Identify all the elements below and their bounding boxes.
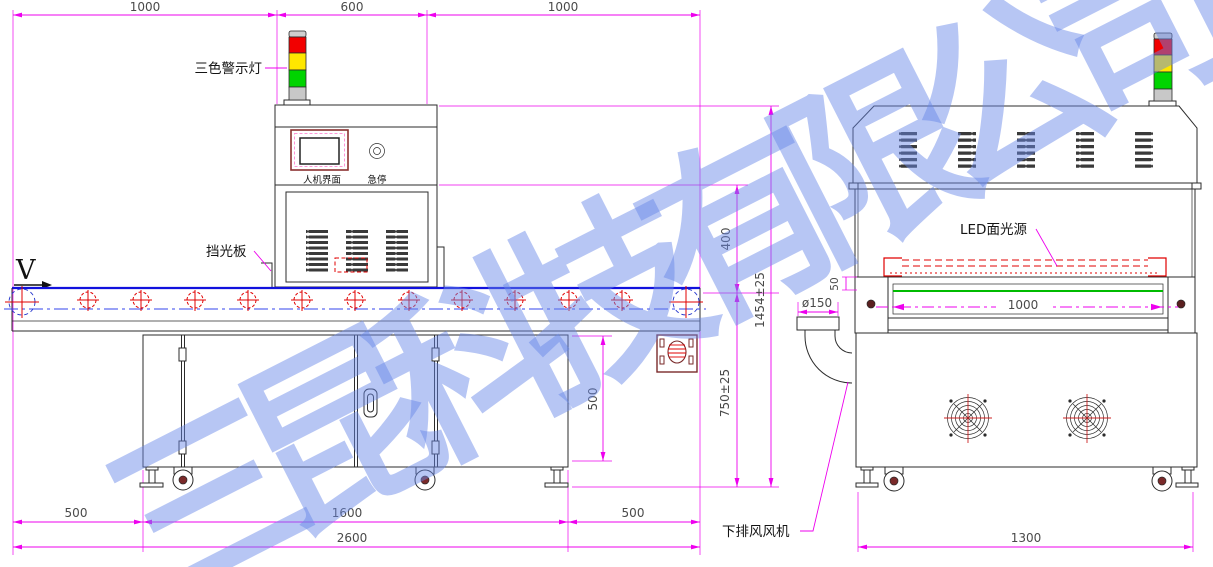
tower-green-segment <box>289 70 306 87</box>
dim-cabinet-500: 500 <box>586 388 600 411</box>
gap-dimension: 50 <box>829 277 857 291</box>
tower-light-callout: 三色警示灯 <box>195 60 288 77</box>
exhaust-duct: ø150 <box>797 296 852 383</box>
dim-400: 400 <box>719 228 733 251</box>
conveyor <box>4 286 706 331</box>
dim-bottom-2600: 2600 <box>337 531 368 545</box>
light-shield-left <box>261 263 272 289</box>
exhaust-label: 下排风风机 <box>722 524 790 540</box>
caster-wheel <box>173 467 193 490</box>
roller <box>611 290 633 311</box>
feet-and-casters-side <box>140 467 568 490</box>
hood-louver <box>958 132 976 171</box>
side-view: 1000 600 1000 500 1600 500 2600 400 750±… <box>4 0 779 555</box>
hmi-screen <box>291 130 348 170</box>
hood-louver <box>1135 132 1153 171</box>
duct-dimension: ø150 <box>798 296 838 316</box>
dim-top-600: 600 <box>341 0 364 14</box>
louver-group <box>386 230 408 273</box>
leveling-foot <box>545 467 568 487</box>
rollers <box>77 290 633 311</box>
dim-bottom-left-500: 500 <box>65 506 88 520</box>
cad-drawing-page: 1000 600 1000 500 1600 500 2600 400 750±… <box>0 0 1213 567</box>
hood-louver <box>899 132 917 171</box>
tower-base <box>289 87 306 100</box>
hinge <box>179 348 186 361</box>
cooling-fan <box>944 394 992 443</box>
roller <box>398 290 420 311</box>
dim-top-right-1000: 1000 <box>548 0 579 14</box>
dim-bottom-1600: 1600 <box>332 506 363 520</box>
tower-yellow-segment <box>289 53 306 70</box>
hood-louver <box>1076 132 1094 171</box>
tower-light-side <box>284 31 310 105</box>
caster-wheel <box>415 467 435 490</box>
estop-label: 急停 <box>367 174 387 186</box>
dim-1300: 1300 <box>1011 531 1042 545</box>
dim-duct-dia: ø150 <box>802 296 832 310</box>
bolt <box>867 300 875 308</box>
light-shield-callout: 挡光板 <box>206 244 271 271</box>
leveling-foot <box>856 467 878 487</box>
bottom-dimensions: 500 1600 500 2600 <box>13 506 700 547</box>
feet-and-casters-front <box>856 467 1198 491</box>
end-roller-left <box>5 286 39 318</box>
front-lower-cabinet <box>856 333 1197 467</box>
light-shield-right <box>437 247 444 289</box>
roller <box>184 290 206 311</box>
view-marker: V <box>14 255 52 289</box>
dim-bottom-right-500: 500 <box>622 506 645 520</box>
front-view: LED面光源 1000 <box>722 33 1201 552</box>
roller <box>77 290 99 311</box>
control-box: 人机界面 急停 <box>261 105 444 289</box>
hinge <box>432 441 439 454</box>
hinge <box>432 348 439 361</box>
leveling-foot <box>1176 467 1198 487</box>
caster-wheel <box>884 467 904 491</box>
tower-red-segment <box>289 37 306 53</box>
exhaust-callout: 下排风风机 <box>722 382 848 540</box>
louver-group <box>306 230 328 273</box>
leveling-foot <box>140 467 163 487</box>
roller <box>451 290 473 311</box>
roller <box>237 290 259 311</box>
dim-1454: 1454±25 <box>753 272 767 328</box>
caster-wheel <box>1152 467 1172 491</box>
light-shield-label: 挡光板 <box>206 244 247 260</box>
roller <box>130 290 152 311</box>
led-label: LED面光源 <box>960 222 1027 238</box>
tower-light-front <box>1149 33 1176 106</box>
hood <box>849 106 1201 189</box>
roller <box>558 290 580 311</box>
tower-cap <box>289 31 306 37</box>
view-marker-letter: V <box>15 255 36 286</box>
machine-drawing: 1000 600 1000 500 1600 500 2600 400 750±… <box>0 0 1213 567</box>
roller <box>291 290 313 311</box>
tower-light-label: 三色警示灯 <box>195 60 263 77</box>
roller <box>344 290 366 311</box>
hmi-label: 人机界面 <box>303 174 341 186</box>
power-socket <box>657 335 697 372</box>
cooling-fan <box>1063 394 1111 443</box>
hinge <box>179 441 186 454</box>
dim-belt-1000: 1000 <box>1008 298 1039 312</box>
top-dimensions: 1000 600 1000 <box>13 0 700 15</box>
height-dimensions: 400 750±25 1454±25 500 <box>586 106 771 487</box>
roller <box>504 290 526 311</box>
louver-group <box>346 230 368 273</box>
hood-louver <box>1017 132 1035 171</box>
front-width-dimension: 1300 <box>858 492 1193 552</box>
end-roller-right <box>669 286 703 318</box>
dim-750: 750±25 <box>718 369 732 417</box>
dim-top-left-1000: 1000 <box>130 0 161 14</box>
cabinet <box>143 335 568 467</box>
dim-50: 50 <box>829 277 841 290</box>
bolt <box>1177 300 1185 308</box>
